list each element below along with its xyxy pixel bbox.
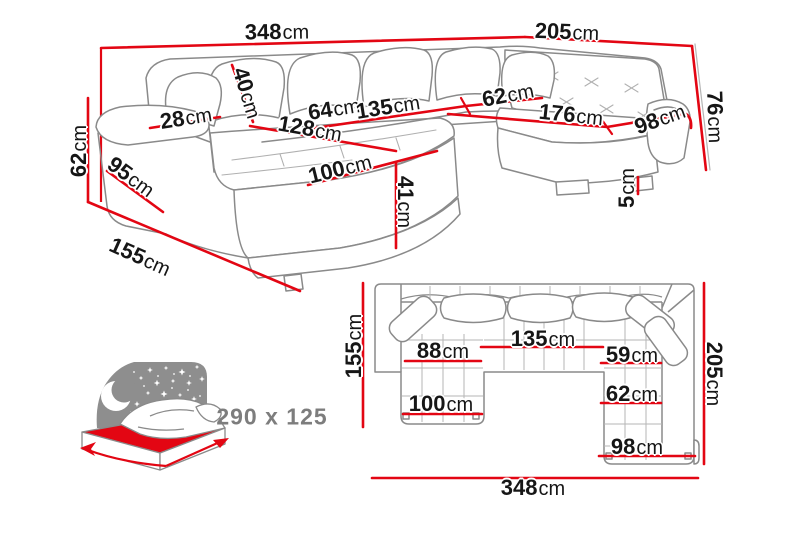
dim-persp-leg-height: 5cm [616, 168, 638, 208]
dim-plan-right-62: 62cm [606, 383, 658, 405]
dim-plan-right-98: 98cm [611, 436, 663, 458]
sofa-dimension-diagram: 348cm 205cm 76cm 62cm 95cm 155cm 28cm 40… [0, 0, 800, 533]
dim-plan-left-depth: 155cm [343, 314, 365, 378]
dim-plan-right-depth: 205cm [703, 342, 725, 406]
plan-pillow [441, 294, 507, 323]
plan-pillow [508, 294, 574, 323]
dim-plan-total-width: 348cm [501, 477, 565, 499]
sofa-bed-icon [80, 362, 229, 470]
dim-persp-back-height: 76cm [703, 91, 727, 144]
dim-plan-chaise-88: 88cm [417, 340, 469, 362]
dim-persp-arm-height: 62cm [68, 125, 90, 177]
sofa-leg [556, 180, 589, 195]
dim-plan-middle-135: 135cm [511, 328, 575, 350]
dim-persp-right-width: 205cm [534, 20, 599, 44]
dim-plan-chaise-100: 100cm [409, 393, 473, 415]
dim-plan-right-59: 59cm [606, 344, 658, 366]
diagram-canvas [0, 0, 800, 533]
dim-persp-seat-height: 41cm [394, 176, 416, 228]
dim-persp-back-width: 348cm [245, 20, 310, 43]
sleeping-area-size: 290 x 125 [216, 404, 327, 431]
